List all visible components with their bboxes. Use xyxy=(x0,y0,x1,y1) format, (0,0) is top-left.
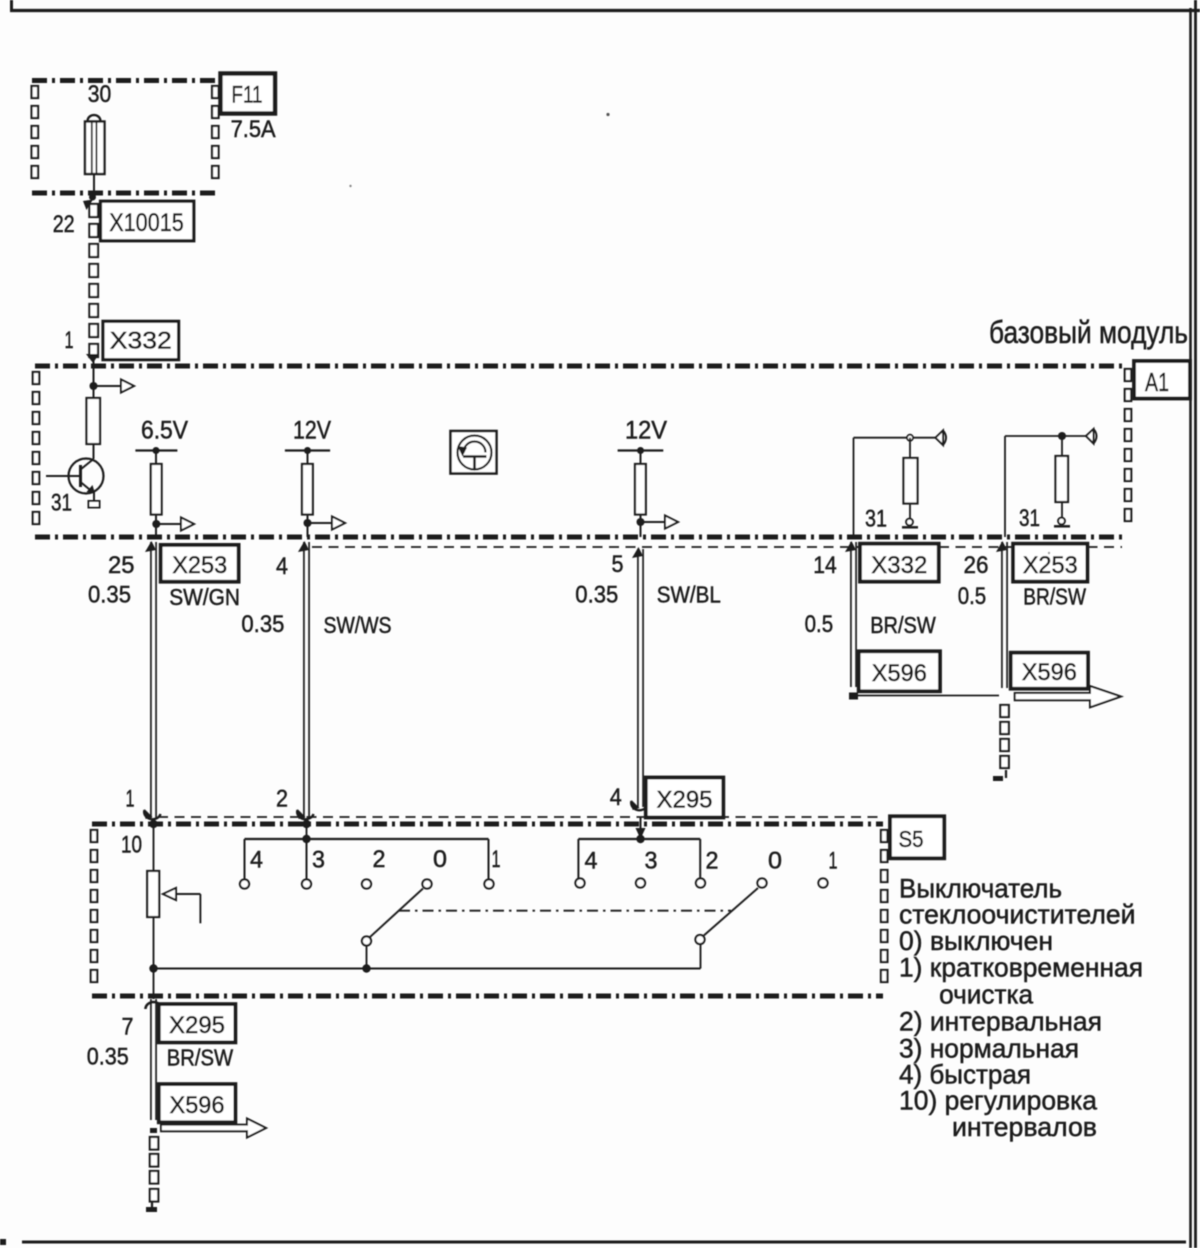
svg-text:1) кратковременная: 1) кратковременная xyxy=(899,953,1143,983)
svg-text:X295: X295 xyxy=(169,1012,225,1039)
svg-text:4: 4 xyxy=(610,784,622,811)
svg-text:1: 1 xyxy=(65,327,74,354)
svg-text:31: 31 xyxy=(51,490,72,517)
svg-text:7.5A: 7.5A xyxy=(231,116,277,143)
svg-text:X253: X253 xyxy=(1023,552,1078,579)
svg-text:S5: S5 xyxy=(899,826,924,852)
svg-text:0.35: 0.35 xyxy=(87,1044,129,1071)
svg-text:4: 4 xyxy=(250,847,263,874)
svg-text:X295: X295 xyxy=(657,787,713,814)
svg-text:0.35: 0.35 xyxy=(241,611,284,638)
svg-text:10: 10 xyxy=(121,832,142,859)
svg-text:4: 4 xyxy=(585,848,598,875)
svg-text:31: 31 xyxy=(865,506,887,533)
svg-text:6.5V: 6.5V xyxy=(141,417,188,445)
svg-text:базовый модуль: базовый модуль xyxy=(989,314,1188,350)
svg-text:SW/GN: SW/GN xyxy=(169,584,240,610)
svg-text:интервалов: интервалов xyxy=(952,1112,1097,1142)
svg-text:30: 30 xyxy=(88,81,112,108)
svg-text:SW/BL: SW/BL xyxy=(657,582,721,608)
svg-text:BR/SW: BR/SW xyxy=(1023,584,1086,610)
svg-text:X332: X332 xyxy=(871,552,927,579)
svg-text:1: 1 xyxy=(492,846,501,873)
svg-text:14: 14 xyxy=(813,552,837,579)
svg-text:4: 4 xyxy=(276,553,288,580)
svg-text:A1: A1 xyxy=(1145,367,1169,397)
svg-text:BR/SW: BR/SW xyxy=(870,612,936,638)
svg-text:25: 25 xyxy=(108,552,135,579)
svg-text:0.35: 0.35 xyxy=(88,582,131,609)
svg-text:2: 2 xyxy=(276,786,288,813)
svg-text:0.5: 0.5 xyxy=(958,583,987,610)
svg-text:0: 0 xyxy=(433,846,447,873)
svg-text:3: 3 xyxy=(312,847,325,874)
svg-text:F11: F11 xyxy=(232,82,263,109)
svg-text:X596: X596 xyxy=(1022,659,1077,686)
svg-text:12V: 12V xyxy=(625,417,667,445)
svg-text:5: 5 xyxy=(612,551,624,578)
svg-text:0) выключен: 0) выключен xyxy=(899,926,1053,956)
svg-text:BR/SW: BR/SW xyxy=(167,1045,234,1071)
svg-text:X10015: X10015 xyxy=(109,209,184,237)
svg-text:2: 2 xyxy=(706,848,719,875)
svg-text:12V: 12V xyxy=(293,417,331,445)
svg-text:X332: X332 xyxy=(110,328,172,355)
svg-text:31: 31 xyxy=(1019,505,1040,532)
svg-text:SW/WS: SW/WS xyxy=(324,612,392,638)
svg-text:X253: X253 xyxy=(172,552,227,579)
svg-text:2) интервальная: 2) интервальная xyxy=(899,1007,1102,1037)
svg-text:26: 26 xyxy=(964,552,989,579)
svg-text:2: 2 xyxy=(373,846,386,873)
svg-text:3: 3 xyxy=(645,848,658,875)
svg-text:0.5: 0.5 xyxy=(805,611,834,638)
svg-text:7: 7 xyxy=(122,1014,134,1041)
svg-text:10) регулировка: 10) регулировка xyxy=(899,1086,1097,1116)
svg-text:22: 22 xyxy=(53,211,75,238)
svg-text:X596: X596 xyxy=(872,660,927,687)
svg-text:стеклоочистителей: стеклоочистителей xyxy=(899,900,1136,930)
svg-text:0: 0 xyxy=(768,848,782,875)
svg-text:1: 1 xyxy=(126,786,135,813)
svg-text:X596: X596 xyxy=(170,1092,225,1119)
svg-text:очистка: очистка xyxy=(939,980,1033,1010)
svg-text:0.35: 0.35 xyxy=(575,582,618,609)
svg-text:1: 1 xyxy=(829,848,838,875)
